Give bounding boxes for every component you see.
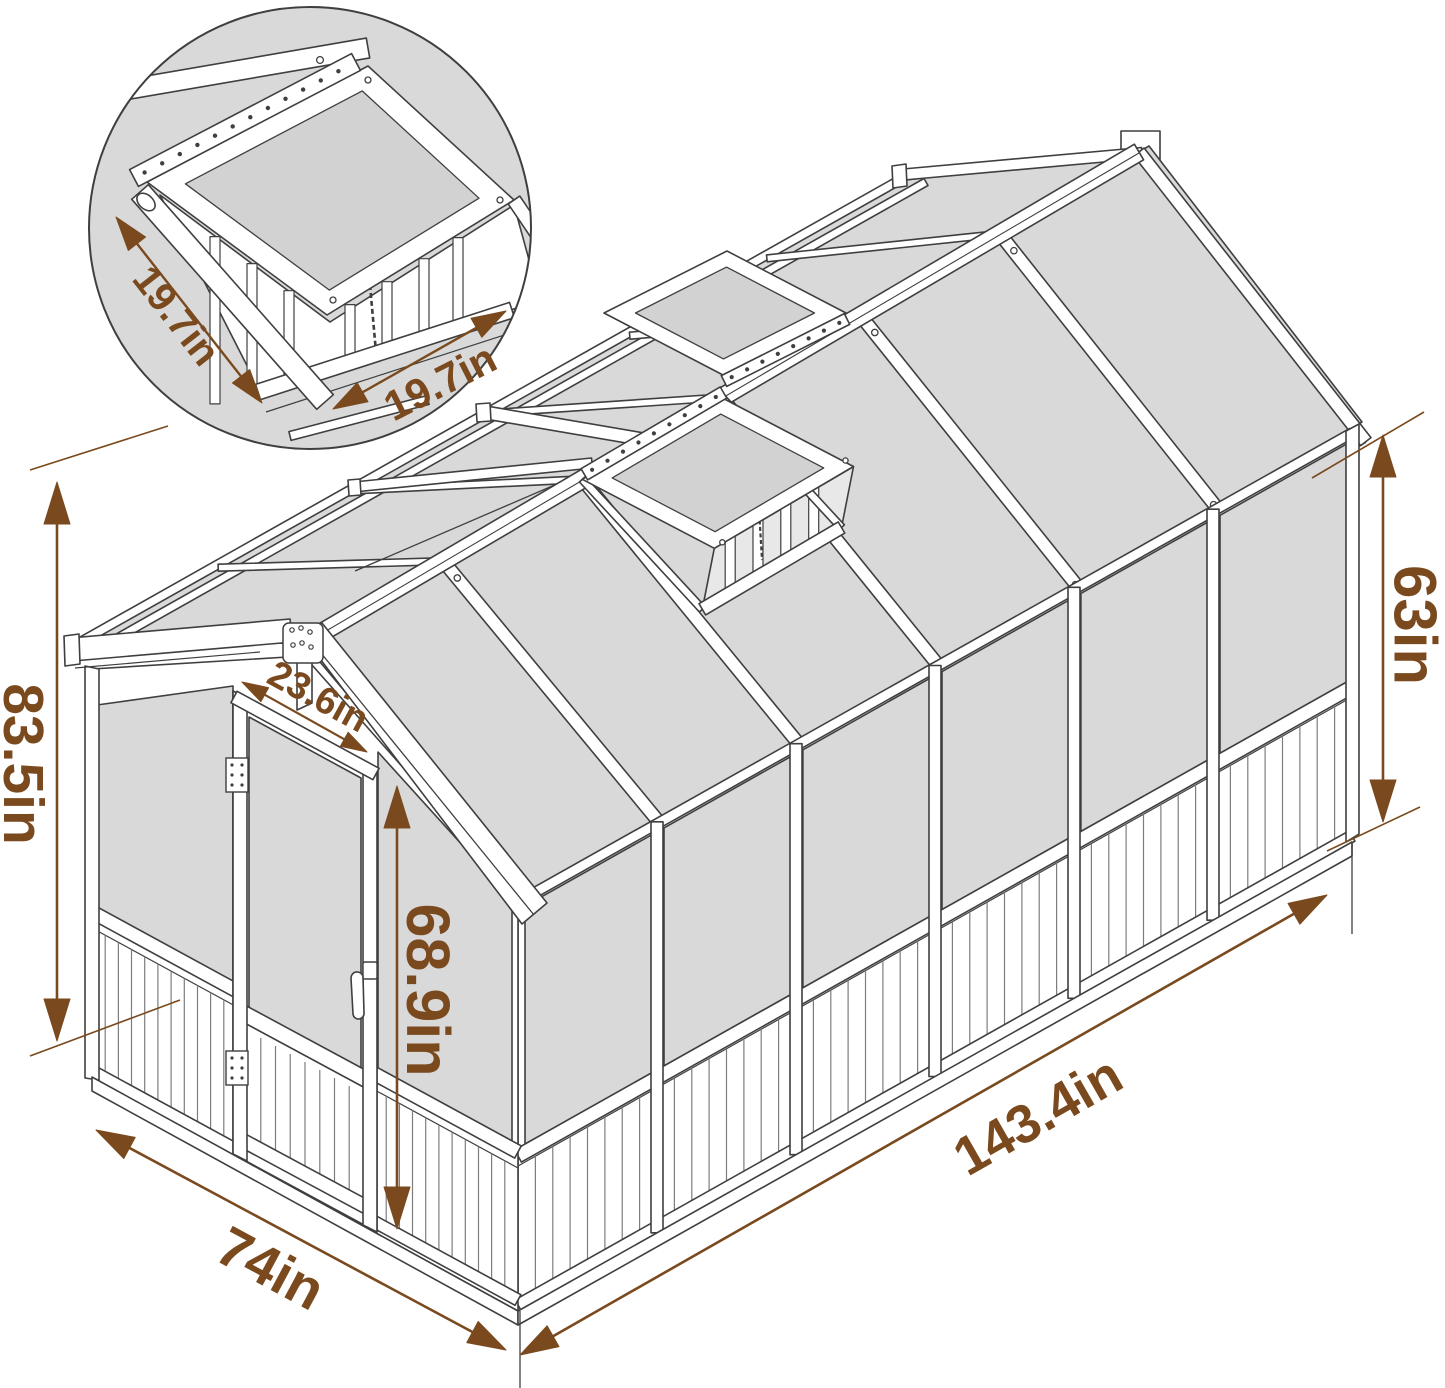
- svg-text:83.5in: 83.5in: [0, 683, 55, 845]
- svg-text:68.9in: 68.9in: [394, 904, 462, 1077]
- svg-text:63in: 63in: [1382, 565, 1445, 685]
